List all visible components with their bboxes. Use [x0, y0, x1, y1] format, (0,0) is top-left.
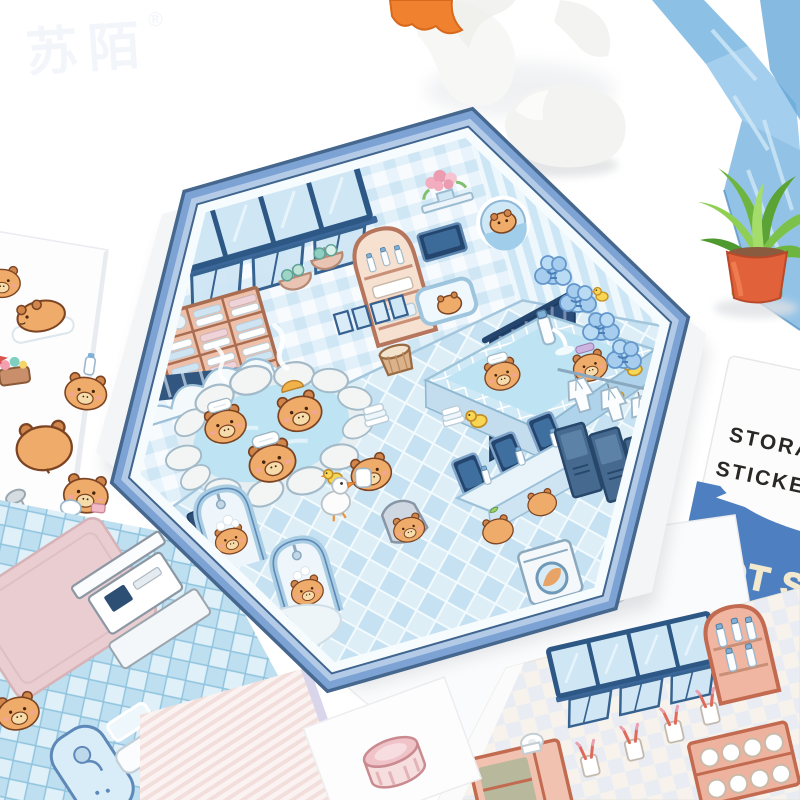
product-photo: { "watermark": { "text": "苏陌", "register…: [0, 0, 800, 800]
photo-canvas: 苏陌 ®: [0, 0, 800, 800]
pebble: [505, 84, 626, 167]
watermark-text: 苏陌: [24, 17, 152, 84]
registered-mark: ®: [147, 9, 163, 32]
